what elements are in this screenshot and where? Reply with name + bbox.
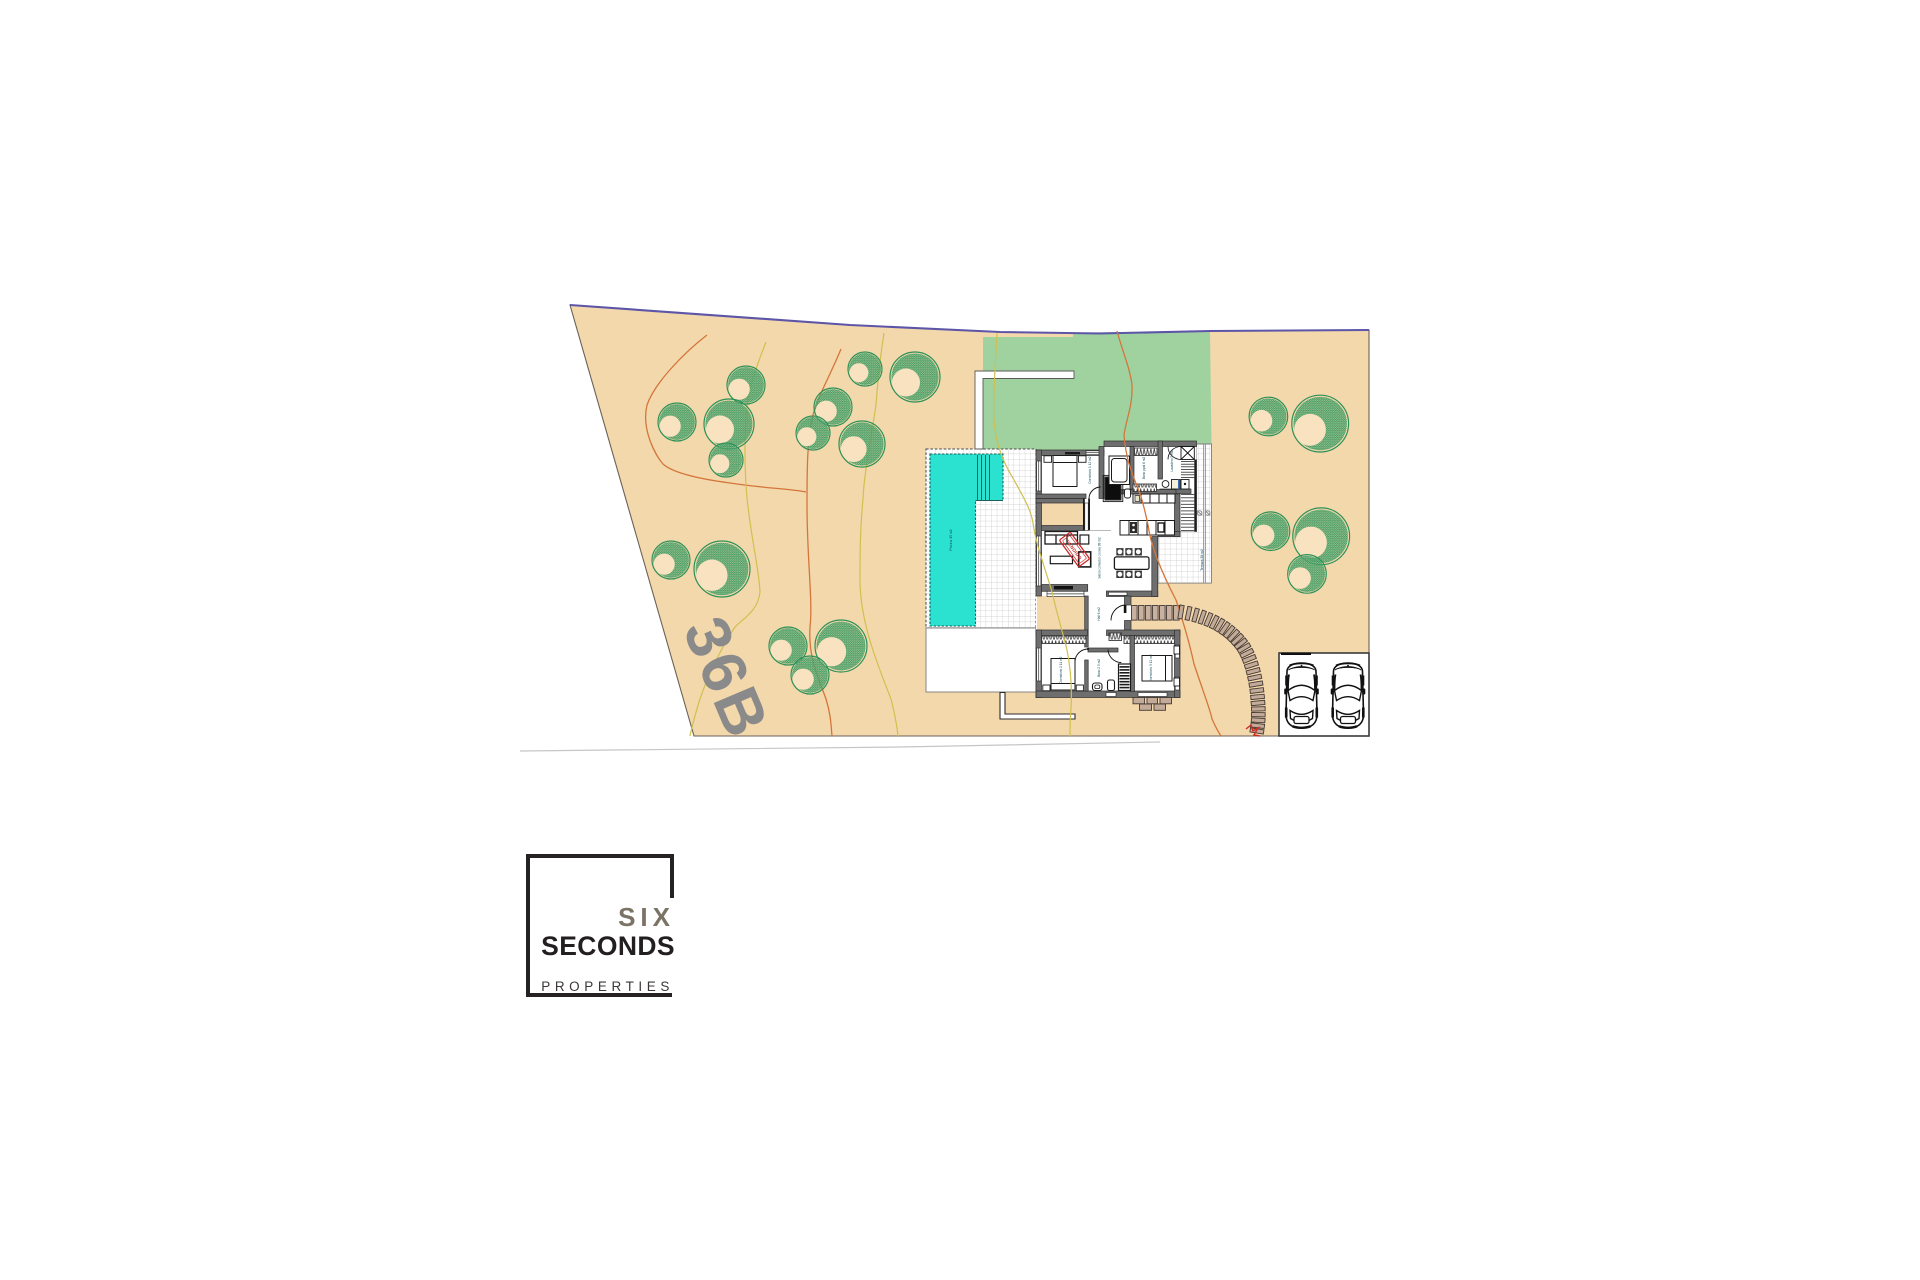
- svg-text:Piscina 45 m2: Piscina 45 m2: [949, 529, 953, 550]
- svg-text:Bano 2 5 m2: Bano 2 5 m2: [1097, 659, 1101, 677]
- svg-text:Salon comedor cocina 38 m2: Salon comedor cocina 38 m2: [1098, 537, 1102, 579]
- svg-text:Dormitorio 2 11 m2: Dormitorio 2 11 m2: [1059, 656, 1063, 683]
- svg-text:PROPERTIES: PROPERTIES: [541, 979, 674, 994]
- svg-text:Terraza 38 m2: Terraza 38 m2: [1200, 549, 1204, 571]
- svg-text:Lavadero 5 m2: Lavadero 5 m2: [1170, 450, 1174, 471]
- svg-text:Hall 6 m2: Hall 6 m2: [1097, 607, 1101, 621]
- svg-text:Bano ppal 6 m2: Bano ppal 6 m2: [1142, 457, 1146, 480]
- svg-text:Dormitorio 1 12 m2: Dormitorio 1 12 m2: [1088, 456, 1092, 483]
- svg-text:Dormitorio 3 12 m2: Dormitorio 3 12 m2: [1149, 654, 1153, 681]
- svg-text:SIX: SIX: [618, 902, 675, 932]
- svg-text:SECONDS: SECONDS: [541, 931, 675, 961]
